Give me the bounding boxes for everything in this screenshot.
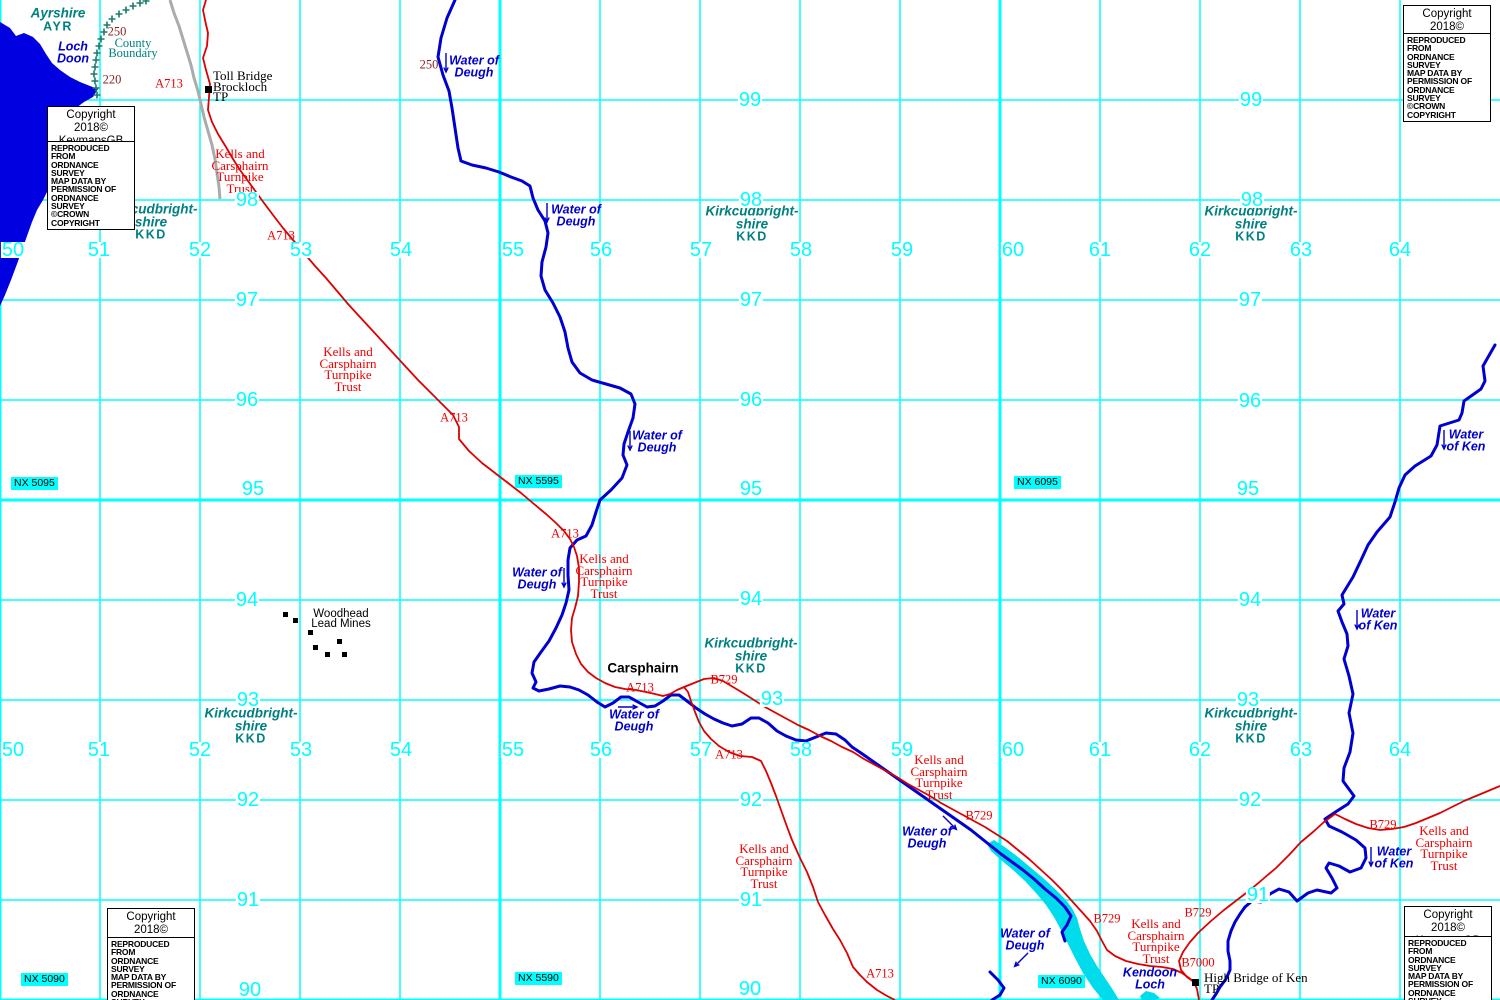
contour-250-b: 250 bbox=[420, 58, 439, 73]
grid-number: 94 bbox=[739, 591, 763, 607]
water-of-deugh-4: Water ofDeugh bbox=[512, 568, 562, 591]
grid-number: 61 bbox=[1088, 742, 1112, 758]
grid-number: 92 bbox=[1238, 792, 1262, 808]
os-attribution-box: REPRODUCED FROMORDNANCE SURVEYMAP DATA B… bbox=[1403, 33, 1491, 122]
grid-number: 91 bbox=[236, 892, 260, 908]
county-boundary-label: CountyBoundary bbox=[108, 38, 157, 58]
road-a713-3: A713 bbox=[440, 411, 468, 426]
road-b729-5: B729 bbox=[1369, 818, 1396, 833]
water-of-deugh-1: Water ofDeugh bbox=[449, 56, 499, 79]
turnpike-1: Kells andCarsphairnTurnpikeTrust bbox=[211, 148, 268, 194]
water-of-ken-3: Waterof Ken bbox=[1375, 847, 1414, 870]
turnpike-4: Kells andCarsphairnTurnpikeTrust bbox=[910, 754, 967, 800]
grid-number: 96 bbox=[1238, 393, 1262, 409]
grid-number: 64 bbox=[1388, 242, 1412, 258]
grid-number: 59 bbox=[890, 242, 914, 258]
grid-number: 61 bbox=[1088, 242, 1112, 258]
grid-ref-label: NX 6095 bbox=[1014, 476, 1061, 489]
grid-number: 55 bbox=[501, 742, 525, 758]
grid-number: 90 bbox=[238, 982, 262, 998]
turnpike-2: Kells andCarsphairnTurnpikeTrust bbox=[319, 346, 376, 392]
turnpike-5: Kells andCarsphairnTurnpikeTrust bbox=[735, 843, 792, 889]
grid-number: 93 bbox=[236, 692, 260, 708]
grid-number: 52 bbox=[188, 742, 212, 758]
grid-number: 63 bbox=[1289, 242, 1313, 258]
grid-number: 57 bbox=[689, 242, 713, 258]
contour-250-a: 250 bbox=[108, 25, 127, 40]
grid-number: 53 bbox=[289, 742, 313, 758]
woodhead-lead-mines: WoodheadLead Mines bbox=[311, 609, 370, 629]
grid-number: 50 bbox=[1, 742, 25, 758]
high-bridge-of-ken: High Bridge of KenTP bbox=[1204, 973, 1308, 994]
grid-number: 91 bbox=[739, 892, 763, 908]
grid-number: 94 bbox=[235, 592, 259, 608]
water-of-deugh-2: Water ofDeugh bbox=[551, 205, 601, 228]
grid-number: 51 bbox=[87, 742, 111, 758]
grid-number: 99 bbox=[1239, 92, 1263, 108]
toll-bridge-brockloch: Toll BridgeBrocklochTP bbox=[213, 71, 272, 103]
grid-number: 97 bbox=[1238, 292, 1262, 308]
road-b729-2: B729 bbox=[965, 809, 992, 824]
road-b729-3: B729 bbox=[1093, 912, 1120, 927]
os-attribution-box: REPRODUCED FROMORDNANCE SURVEYMAP DATA B… bbox=[107, 937, 195, 1000]
grid-number: 93 bbox=[1236, 692, 1260, 708]
road-b729-1: B729 bbox=[710, 673, 737, 688]
water-of-deugh-3: Water ofDeugh bbox=[632, 431, 682, 454]
water-of-ken-2: Waterof Ken bbox=[1359, 609, 1398, 632]
county-kkd-se: Kirkcudbright-shireKKD bbox=[1205, 707, 1298, 745]
grid-number: 97 bbox=[739, 292, 763, 308]
grid-number: 98 bbox=[235, 192, 259, 208]
map-canvas[interactable]: AyrshireAYRKirkcudbright-shireKKDKirkcud… bbox=[0, 0, 1500, 1000]
place-carsphairn: Carsphairn bbox=[607, 661, 678, 676]
grid-number: 54 bbox=[389, 242, 413, 258]
road-a713-5: A713 bbox=[626, 681, 654, 696]
grid-number: 59 bbox=[890, 742, 914, 758]
grid-number: 62 bbox=[1188, 242, 1212, 258]
grid-ref-label: NX 5595 bbox=[515, 475, 562, 488]
grid-number: 95 bbox=[1236, 481, 1260, 497]
grid-number: 93 bbox=[760, 691, 784, 707]
grid-number: 55 bbox=[501, 242, 525, 258]
grid-number: 53 bbox=[289, 242, 313, 258]
os-attribution-box: REPRODUCED FROMORDNANCE SURVEYMAP DATA B… bbox=[1404, 936, 1492, 1000]
grid-ref-label: NX 5590 bbox=[515, 972, 562, 985]
grid-number: 51 bbox=[87, 242, 111, 258]
road-a713-6: A713 bbox=[715, 748, 743, 763]
grid-number: 95 bbox=[739, 481, 763, 497]
grid-number: 95 bbox=[241, 481, 265, 497]
road-a713-7: A713 bbox=[866, 967, 894, 982]
turnpike-6: Kells andCarsphairnTurnpikeTrust bbox=[1127, 918, 1184, 964]
grid-ref-label: NX 5095 bbox=[11, 477, 58, 490]
grid-number: 62 bbox=[1188, 742, 1212, 758]
grid-number: 92 bbox=[236, 792, 260, 808]
grid-number: 54 bbox=[389, 742, 413, 758]
turnpike-7: Kells andCarsphairnTurnpikeTrust bbox=[1415, 825, 1472, 871]
grid-number: 52 bbox=[188, 242, 212, 258]
county-ayrshire: AyrshireAYR bbox=[31, 8, 86, 33]
grid-number: 60 bbox=[1001, 242, 1025, 258]
road-a713-4: A713 bbox=[551, 527, 579, 542]
grid-number: 63 bbox=[1289, 742, 1313, 758]
water-of-ken-1: Waterof Ken bbox=[1447, 430, 1486, 453]
grid-number: 92 bbox=[739, 792, 763, 808]
grid-number: 50 bbox=[1, 242, 25, 258]
grid-number: 96 bbox=[235, 392, 259, 408]
grid-number: 98 bbox=[739, 192, 763, 208]
road-a713-1: A713 bbox=[155, 77, 183, 92]
grid-number: 58 bbox=[789, 242, 813, 258]
water-of-deugh-5: Water ofDeugh bbox=[609, 710, 659, 733]
loch-doon-label: LochDoon bbox=[57, 42, 89, 65]
water-of-deugh-7: Water ofDeugh bbox=[1000, 929, 1050, 952]
grid-number: 56 bbox=[589, 242, 613, 258]
grid-number: 91 bbox=[1246, 887, 1270, 903]
grid-number: 99 bbox=[738, 92, 762, 108]
road-b7000: B7000 bbox=[1181, 956, 1214, 971]
county-kkd-sw: Kirkcudbright-shireKKD bbox=[205, 707, 298, 745]
road-b729-4: B729 bbox=[1184, 906, 1211, 921]
grid-number: 57 bbox=[689, 742, 713, 758]
grid-number: 60 bbox=[1001, 742, 1025, 758]
os-attribution-box: REPRODUCED FROMORDNANCE SURVEYMAP DATA B… bbox=[47, 141, 135, 230]
grid-number: 58 bbox=[789, 742, 813, 758]
map-label-layer: AyrshireAYRKirkcudbright-shireKKDKirkcud… bbox=[0, 0, 1500, 1000]
contour-220: 220 bbox=[103, 73, 122, 88]
kendoon-loch-label: KendoonLoch bbox=[1123, 968, 1177, 991]
grid-number: 94 bbox=[1238, 592, 1262, 608]
grid-number: 98 bbox=[1240, 192, 1264, 208]
grid-number: 90 bbox=[738, 981, 762, 997]
grid-ref-label: NX 6090 bbox=[1038, 975, 1085, 988]
grid-number: 97 bbox=[235, 292, 259, 308]
grid-number: 64 bbox=[1388, 742, 1412, 758]
grid-number: 56 bbox=[589, 742, 613, 758]
turnpike-3: Kells andCarsphairnTurnpikeTrust bbox=[575, 553, 632, 599]
county-kkd-c: Kirkcudbright-shireKKD bbox=[705, 637, 798, 675]
grid-number: 96 bbox=[739, 392, 763, 408]
grid-ref-label: NX 5090 bbox=[21, 973, 68, 986]
water-of-deugh-6: Water ofDeugh bbox=[902, 827, 952, 850]
